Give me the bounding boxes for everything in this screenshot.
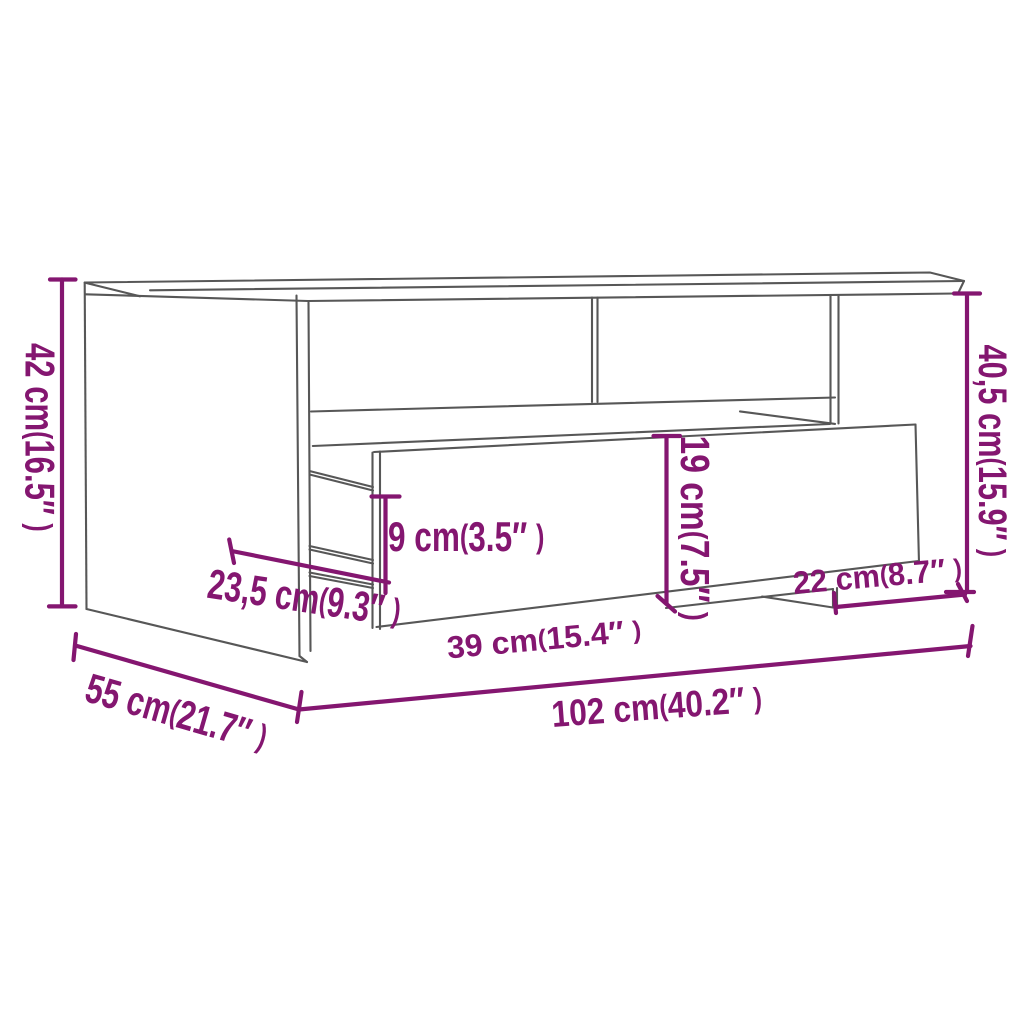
svg-text:55 cm(21.7″ ): 55 cm(21.7″ ): [80, 664, 272, 760]
svg-text:19 cm(7.5″ ): 19 cm(7.5″ ): [672, 436, 718, 621]
svg-text:42 cm(16.5″ ): 42 cm(16.5″ ): [16, 343, 63, 532]
svg-text:22 cm(8.7″ ): 22 cm(8.7″ ): [792, 551, 964, 601]
svg-text:102 cm(40.2″ ): 102 cm(40.2″ ): [550, 679, 763, 735]
svg-text:40,5 cm(15.9″ ): 40,5 cm(15.9″ ): [970, 345, 1015, 558]
svg-text:9 cm(3.5″ ): 9 cm(3.5″ ): [388, 514, 544, 560]
svg-text:39 cm(15.4″ ): 39 cm(15.4″ ): [445, 612, 642, 665]
svg-text:23,5 cm(9.3″ ): 23,5 cm(9.3″ ): [205, 560, 404, 635]
